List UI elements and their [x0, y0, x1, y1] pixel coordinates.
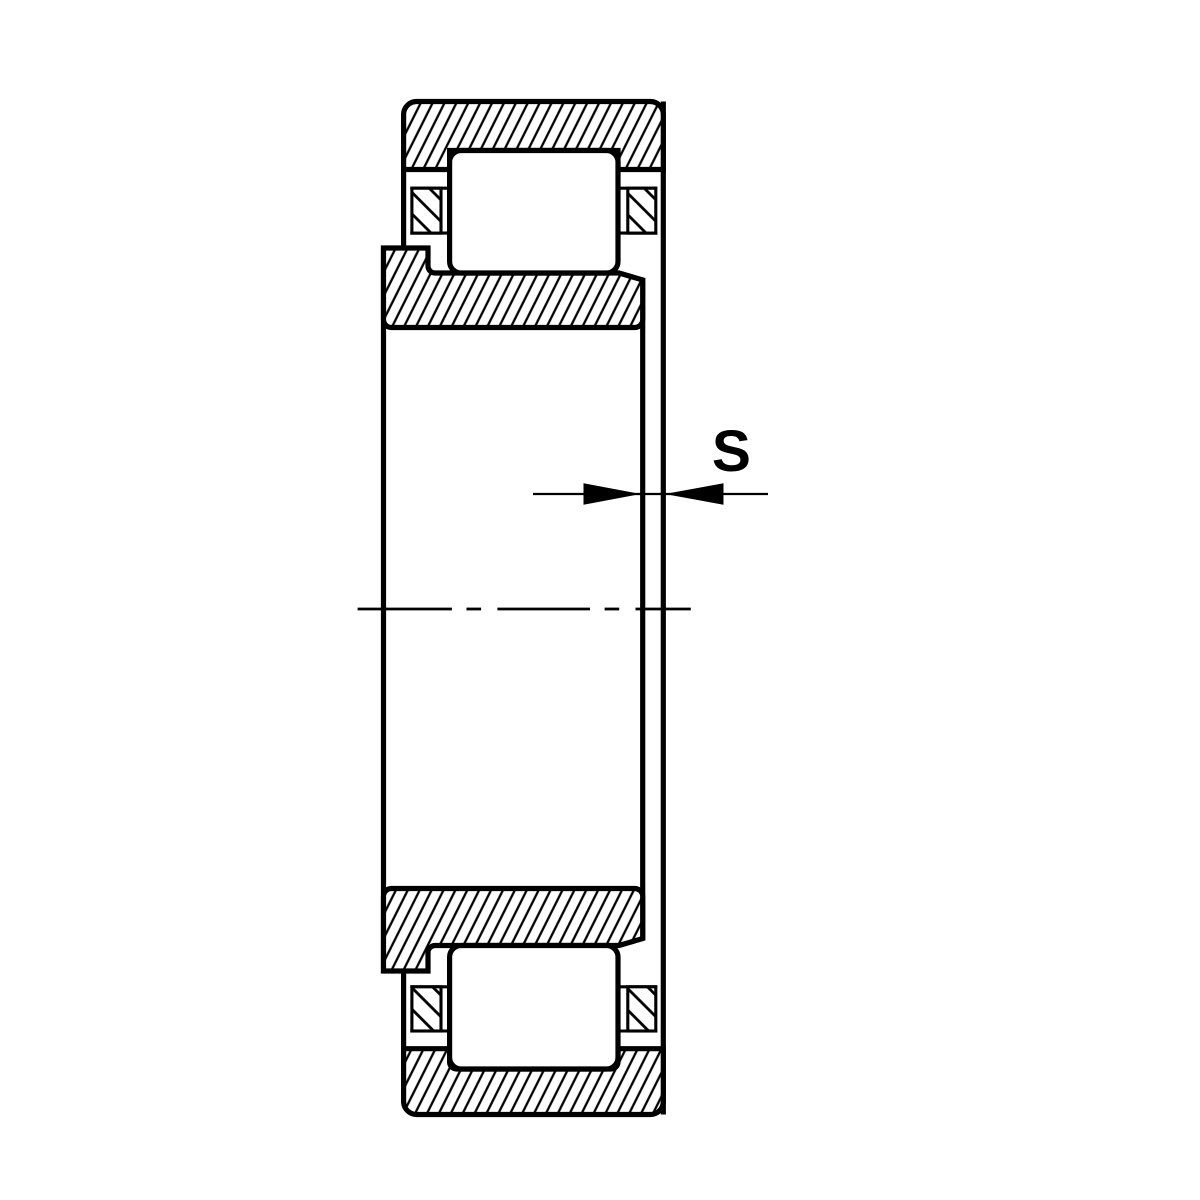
- svg-text:S: S: [712, 419, 751, 484]
